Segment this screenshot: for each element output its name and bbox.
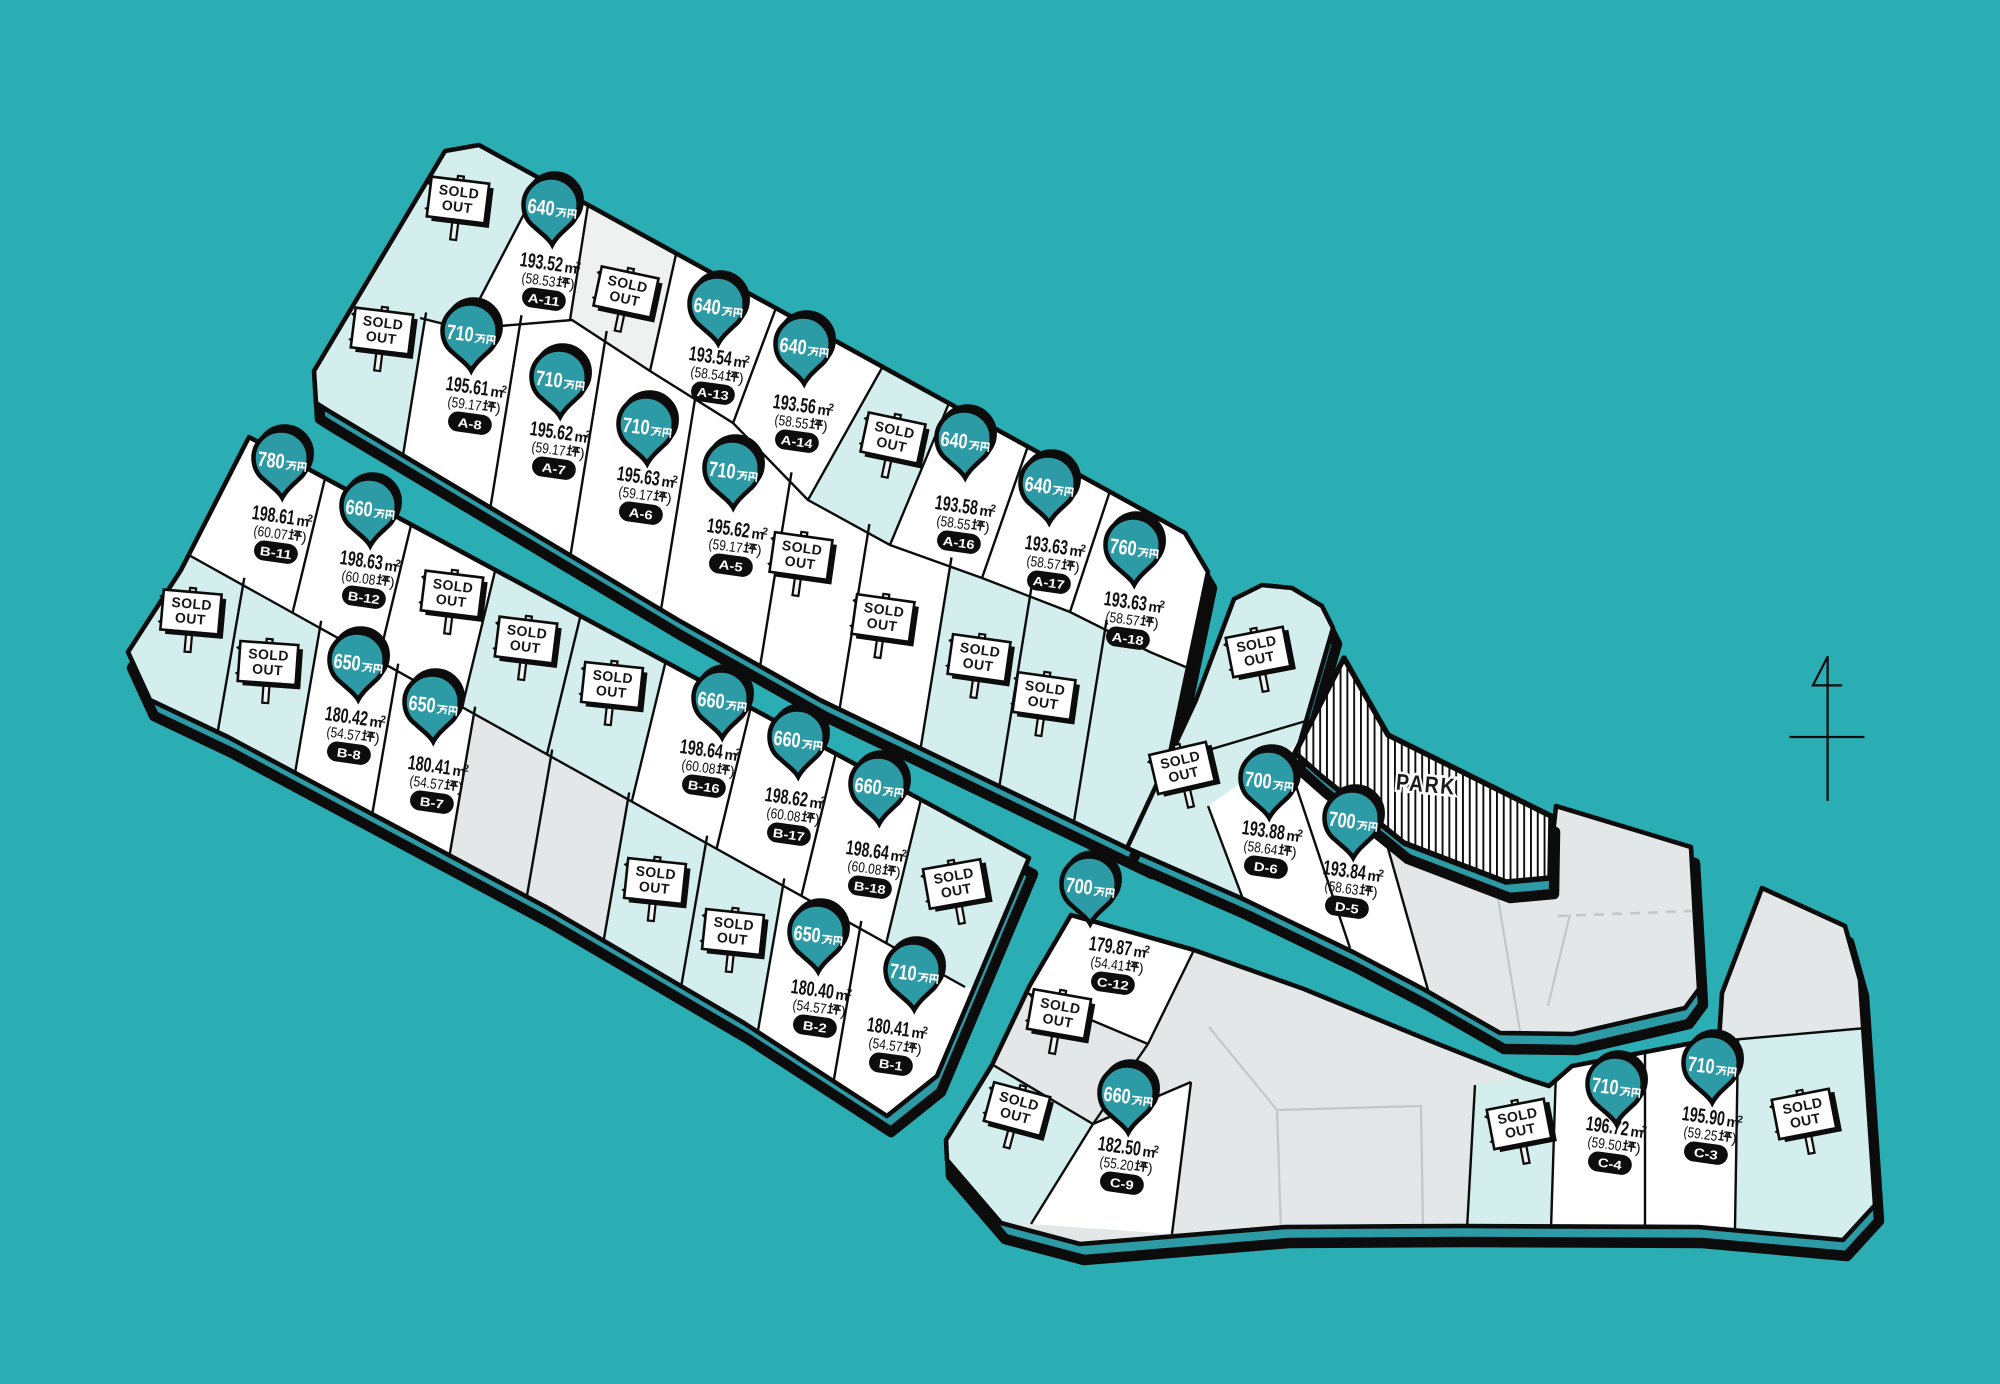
svg-text:640: 640 <box>939 428 969 454</box>
svg-text:780: 780 <box>256 448 286 474</box>
svg-text:660: 660 <box>1102 1083 1132 1109</box>
svg-text:710: 710 <box>1590 1074 1620 1100</box>
svg-text:640: 640 <box>692 294 722 320</box>
svg-text:650: 650 <box>332 650 362 676</box>
svg-text:640: 640 <box>526 195 556 221</box>
svg-text:710: 710 <box>534 367 564 393</box>
svg-text:710: 710 <box>445 321 475 347</box>
svg-text:710: 710 <box>888 960 918 986</box>
svg-text:700: 700 <box>1327 808 1357 834</box>
svg-text:660: 660 <box>696 688 726 714</box>
svg-text:710: 710 <box>621 414 651 440</box>
svg-text:660: 660 <box>772 727 802 753</box>
svg-text:640: 640 <box>1023 473 1053 499</box>
svg-text:640: 640 <box>778 334 808 360</box>
svg-text:650: 650 <box>792 922 822 948</box>
svg-text:700: 700 <box>1064 874 1094 900</box>
svg-text:650: 650 <box>407 692 437 718</box>
svg-text:PARK: PARK <box>1395 769 1457 800</box>
svg-text:760: 760 <box>1108 535 1138 561</box>
svg-text:700: 700 <box>1243 768 1273 794</box>
svg-text:660: 660 <box>344 496 374 522</box>
svg-text:660: 660 <box>853 774 883 800</box>
svg-text:710: 710 <box>707 458 737 484</box>
svg-text:710: 710 <box>1686 1053 1716 1079</box>
